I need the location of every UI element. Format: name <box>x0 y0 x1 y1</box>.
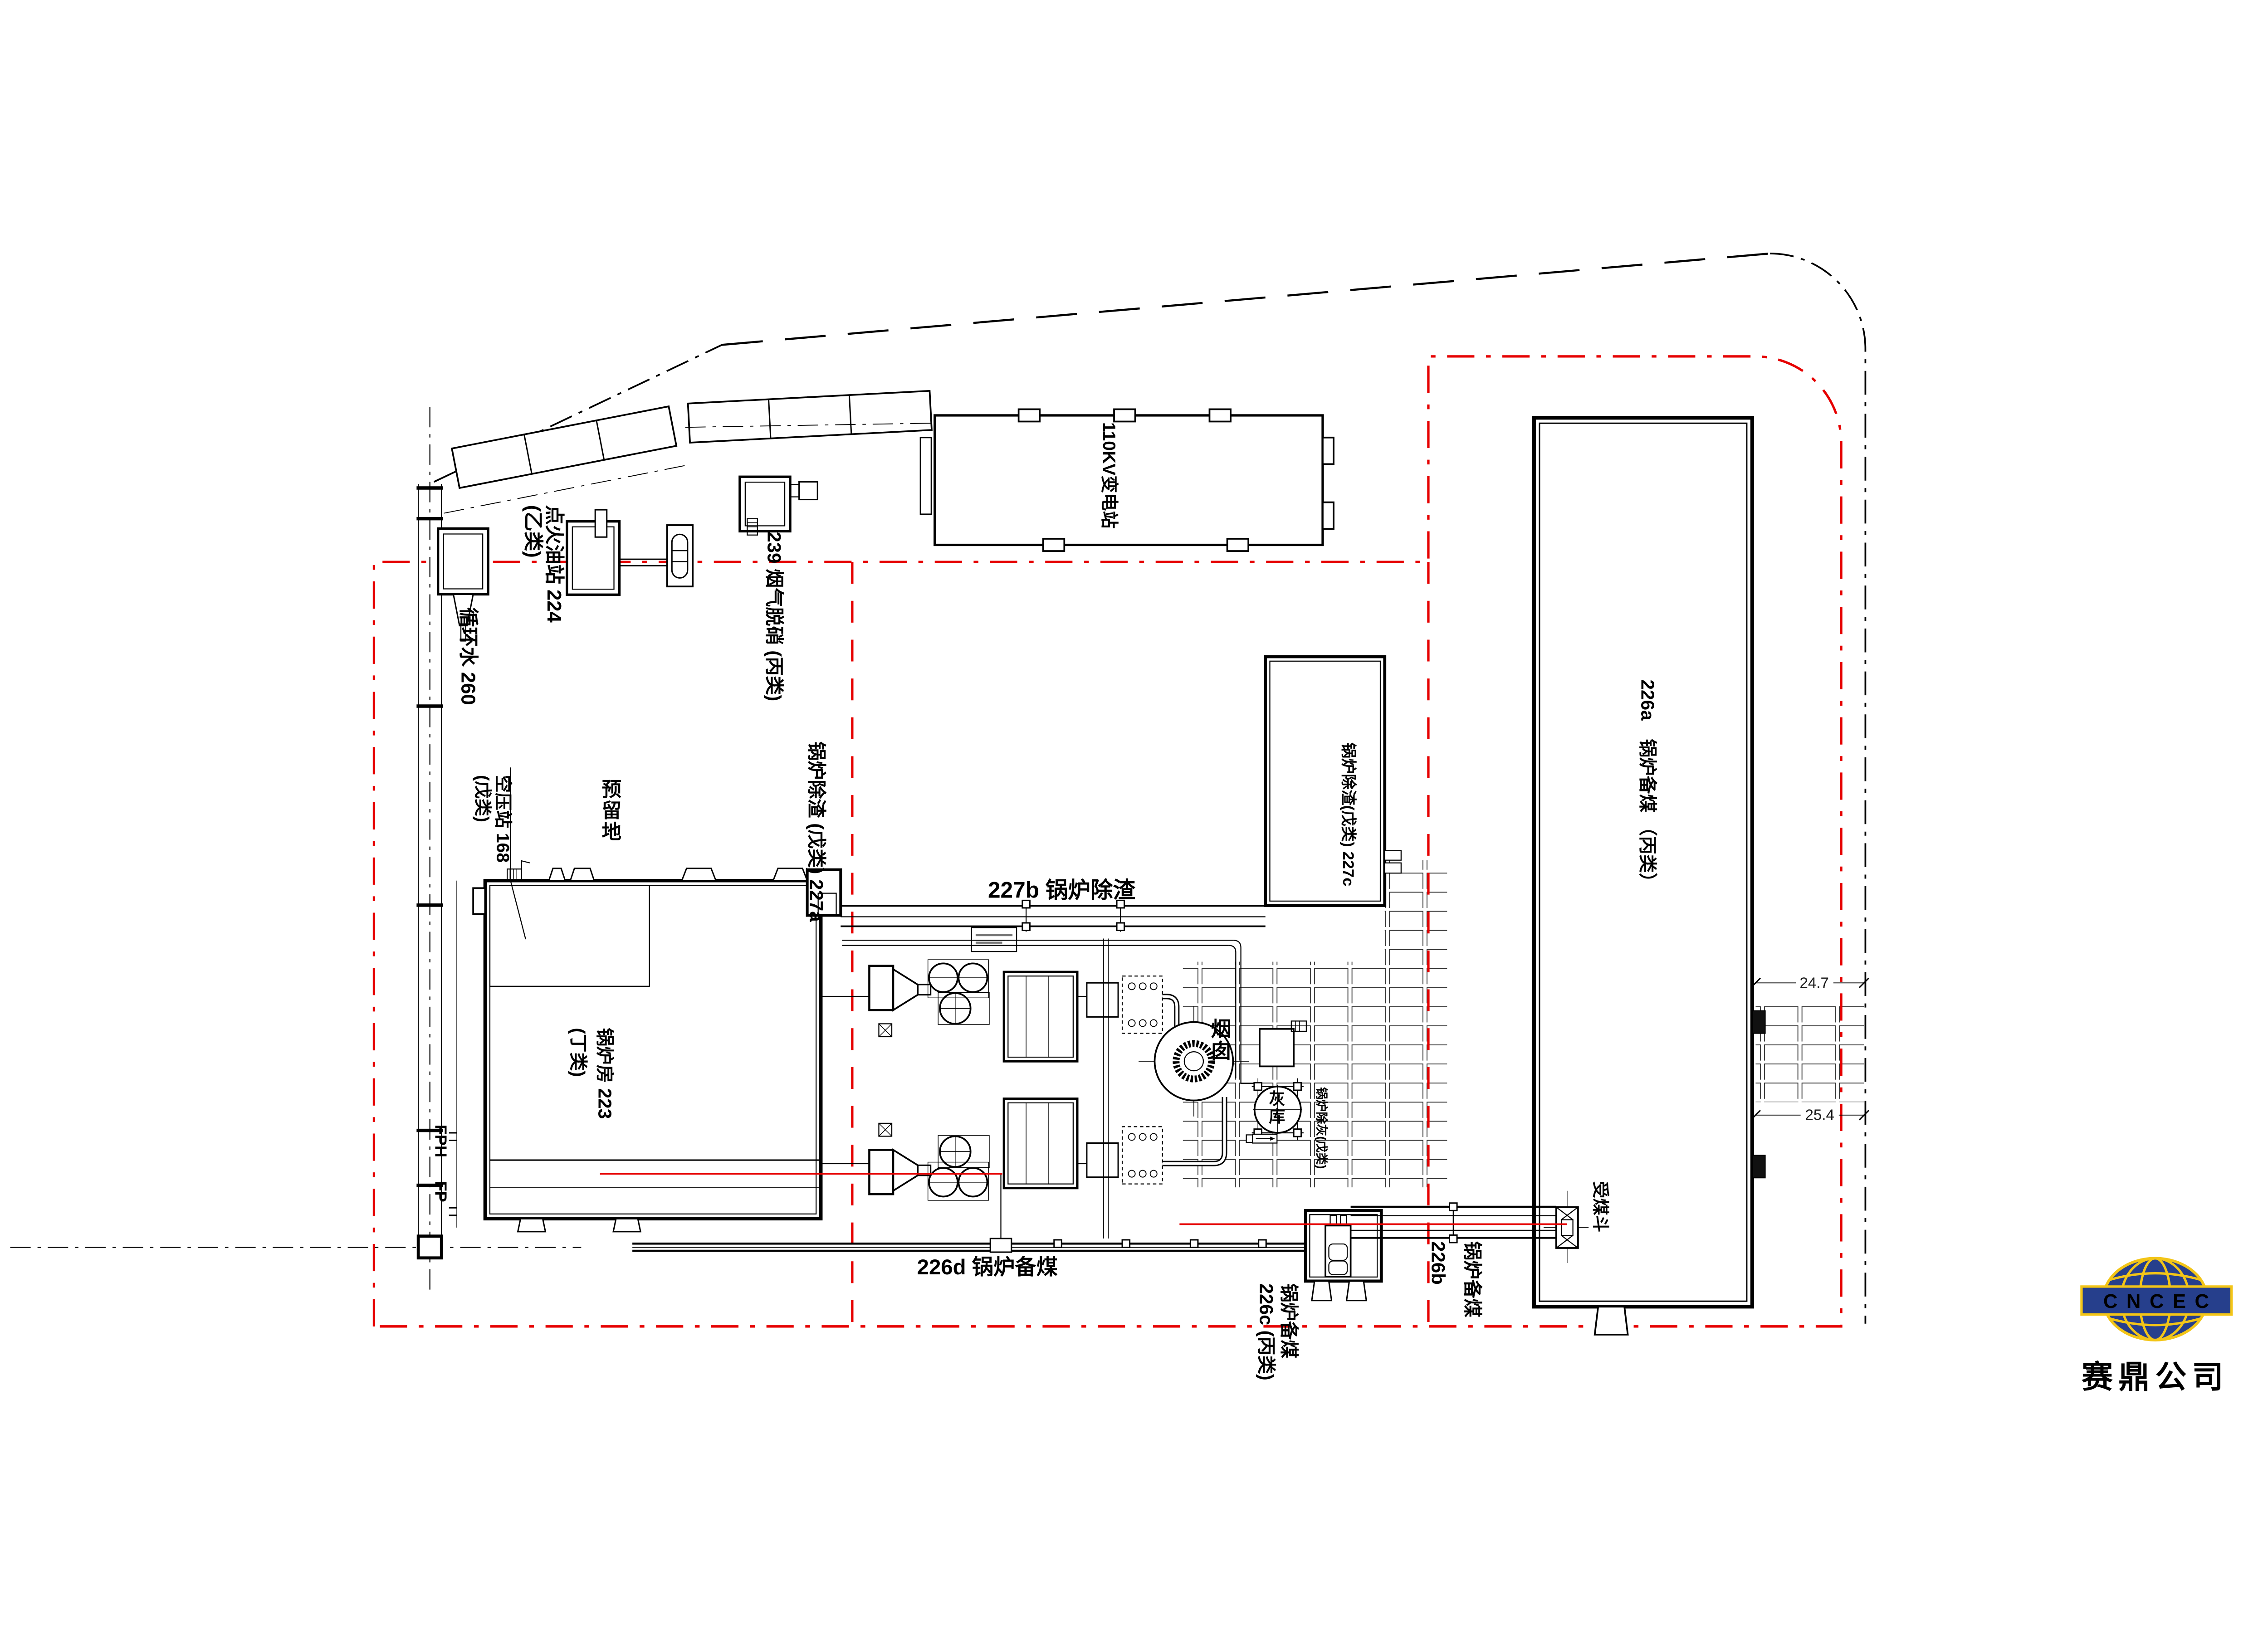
roof-vent <box>773 868 807 881</box>
label-coal-hopper: 受煤斗 <box>1591 1181 1610 1233</box>
label-ash-silo: 灰库 <box>1269 1089 1285 1126</box>
label-dim-east-2: 25.4 <box>1805 1107 1834 1123</box>
north-strip-buildings <box>444 391 989 513</box>
south-porch <box>518 1219 546 1232</box>
label-substation-110kv: 110KV变电站 <box>1099 422 1119 529</box>
roof-vent <box>682 868 716 881</box>
logo-org-zh: 赛鼎公司 <box>2082 1359 2229 1395</box>
label-oil-station-224: 点火油站 224(乙类) <box>522 505 565 623</box>
building-oil-station-224 <box>567 510 693 595</box>
label-coal-226d: 226d 锅炉备煤 <box>917 1255 1058 1279</box>
label-ash-removal: 锅炉除灰(戊类) <box>1315 1087 1329 1169</box>
roof-vent <box>549 868 565 881</box>
label-coal-226a: 226a 锅炉备煤 （丙类） <box>1637 679 1658 891</box>
south-porch <box>613 1219 640 1232</box>
cncec-logo: CNCEC 赛鼎公司 <box>2082 1258 2232 1395</box>
label-reserved-land: 预留地 <box>601 779 621 843</box>
valve-pit <box>418 1236 441 1258</box>
label-slag-227b: 227b 锅炉除渣 <box>988 877 1136 902</box>
label-road-fp: FP <box>432 1181 450 1202</box>
boiler-unit-equipment <box>821 960 1163 1061</box>
logo-org-en: CNCEC <box>2103 1291 2218 1312</box>
label-denitration-239: 239 烟气脱硝 (丙类) <box>763 532 785 701</box>
south-porch <box>1595 1307 1628 1335</box>
west-porch <box>473 888 485 914</box>
label-circ-water-260: 循环水 260 <box>457 607 479 705</box>
ash-truck <box>1246 1134 1277 1143</box>
building-slag-227c <box>1266 657 1401 906</box>
label-coal-226b: 锅炉备煤226b <box>1427 1241 1483 1317</box>
label-slag-227c: 锅炉除渣(戊类) 227c <box>1339 742 1357 886</box>
label-dim-east-1: 24.7 <box>1800 975 1829 992</box>
label-chimney: 烟囱 <box>1211 1018 1231 1063</box>
label-road-fph: FPH <box>432 1125 450 1157</box>
building-110kv-substation <box>920 409 1334 551</box>
note-box <box>972 928 1017 952</box>
roof-vent <box>570 868 594 881</box>
site-plan-canvas: FPHFP循环水 260点火油站 224(乙类)239 烟气脱硝 (丙类)锅炉除… <box>0 0 2268 1629</box>
label-coal-226c: 锅炉备煤226c (丙类) <box>1256 1283 1300 1380</box>
building-denitration-239 <box>740 477 817 535</box>
label-air-compressor-168: 空压站 168(戊类) <box>473 775 513 863</box>
label-slag-227a: 锅炉除渣 (戊类) 227a <box>806 741 827 922</box>
